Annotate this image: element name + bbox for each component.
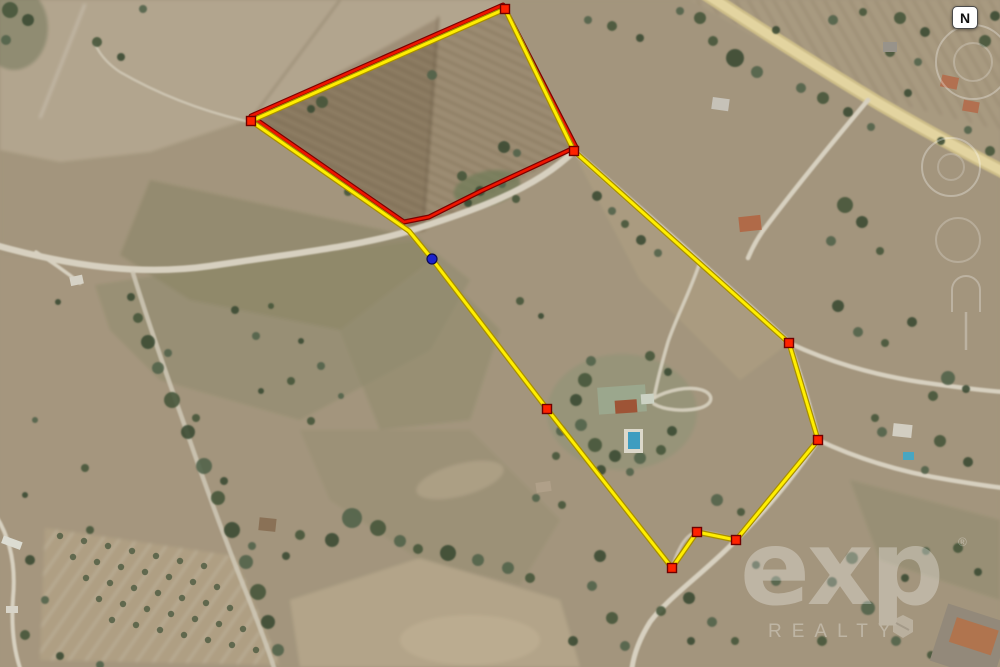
north-compass-badge[interactable]: N bbox=[952, 6, 978, 29]
look-joystick-ring[interactable] bbox=[936, 218, 980, 262]
move-joystick-ring[interactable] bbox=[922, 138, 980, 196]
move-joystick-center[interactable] bbox=[938, 154, 964, 180]
zoom-slider-track[interactable] bbox=[952, 276, 980, 312]
map-canvas[interactable]: N exp ® REALTY bbox=[0, 0, 1000, 667]
compass-ring[interactable] bbox=[936, 25, 1000, 99]
navigation-controls[interactable] bbox=[0, 0, 1000, 667]
compass-ring-inner[interactable] bbox=[954, 43, 992, 81]
north-label: N bbox=[960, 10, 970, 26]
